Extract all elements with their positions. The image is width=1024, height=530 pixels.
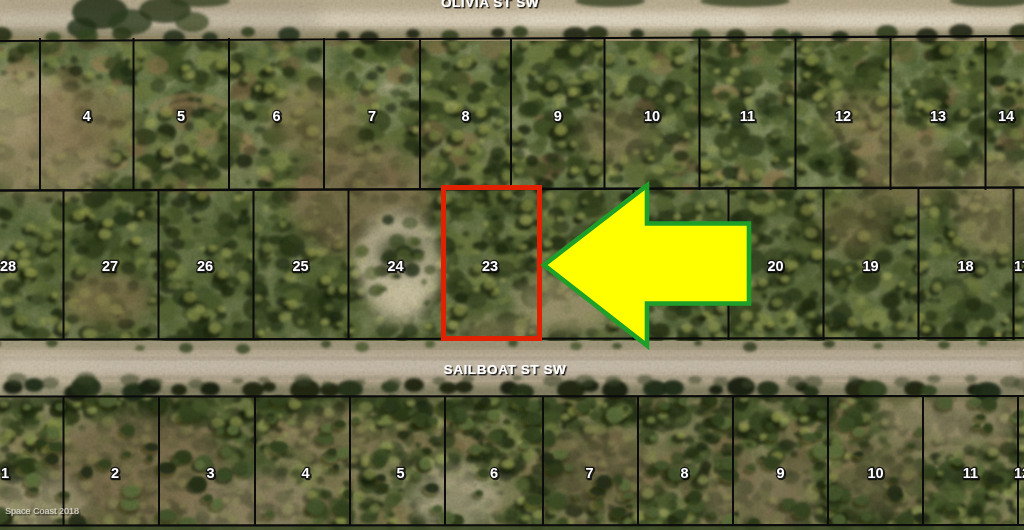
- svg-text:26: 26: [197, 258, 213, 274]
- svg-text:11: 11: [963, 465, 978, 481]
- svg-text:19: 19: [862, 258, 878, 274]
- svg-text:10: 10: [644, 108, 660, 124]
- svg-text:3: 3: [206, 465, 214, 481]
- svg-text:SAILBOAT ST SW: SAILBOAT ST SW: [444, 362, 567, 377]
- svg-text:14: 14: [998, 108, 1014, 124]
- svg-text:25: 25: [292, 258, 308, 274]
- svg-text:Space Coast 2018: Space Coast 2018: [5, 506, 79, 516]
- svg-text:1: 1: [1, 465, 9, 481]
- svg-text:5: 5: [396, 465, 404, 481]
- svg-text:12: 12: [1014, 465, 1024, 481]
- svg-text:13: 13: [930, 108, 946, 124]
- svg-text:27: 27: [102, 258, 118, 274]
- svg-text:11: 11: [740, 108, 755, 124]
- svg-text:2: 2: [111, 465, 119, 481]
- svg-text:8: 8: [461, 108, 469, 124]
- svg-text:28: 28: [0, 258, 16, 274]
- svg-text:4: 4: [301, 465, 309, 481]
- svg-text:18: 18: [957, 258, 973, 274]
- svg-text:OLIVIA ST SW: OLIVIA ST SW: [441, 0, 539, 10]
- svg-text:9: 9: [776, 465, 784, 481]
- svg-text:6: 6: [272, 108, 280, 124]
- svg-text:10: 10: [867, 465, 883, 481]
- svg-text:20: 20: [767, 258, 783, 274]
- svg-text:4: 4: [83, 108, 91, 124]
- svg-text:23: 23: [482, 258, 498, 274]
- svg-text:24: 24: [387, 258, 403, 274]
- svg-text:17: 17: [1014, 258, 1024, 274]
- svg-text:6: 6: [490, 465, 498, 481]
- svg-text:9: 9: [554, 108, 562, 124]
- svg-text:5: 5: [177, 108, 185, 124]
- svg-text:8: 8: [680, 465, 688, 481]
- svg-text:7: 7: [585, 465, 593, 481]
- svg-text:12: 12: [835, 108, 851, 124]
- svg-text:7: 7: [368, 108, 376, 124]
